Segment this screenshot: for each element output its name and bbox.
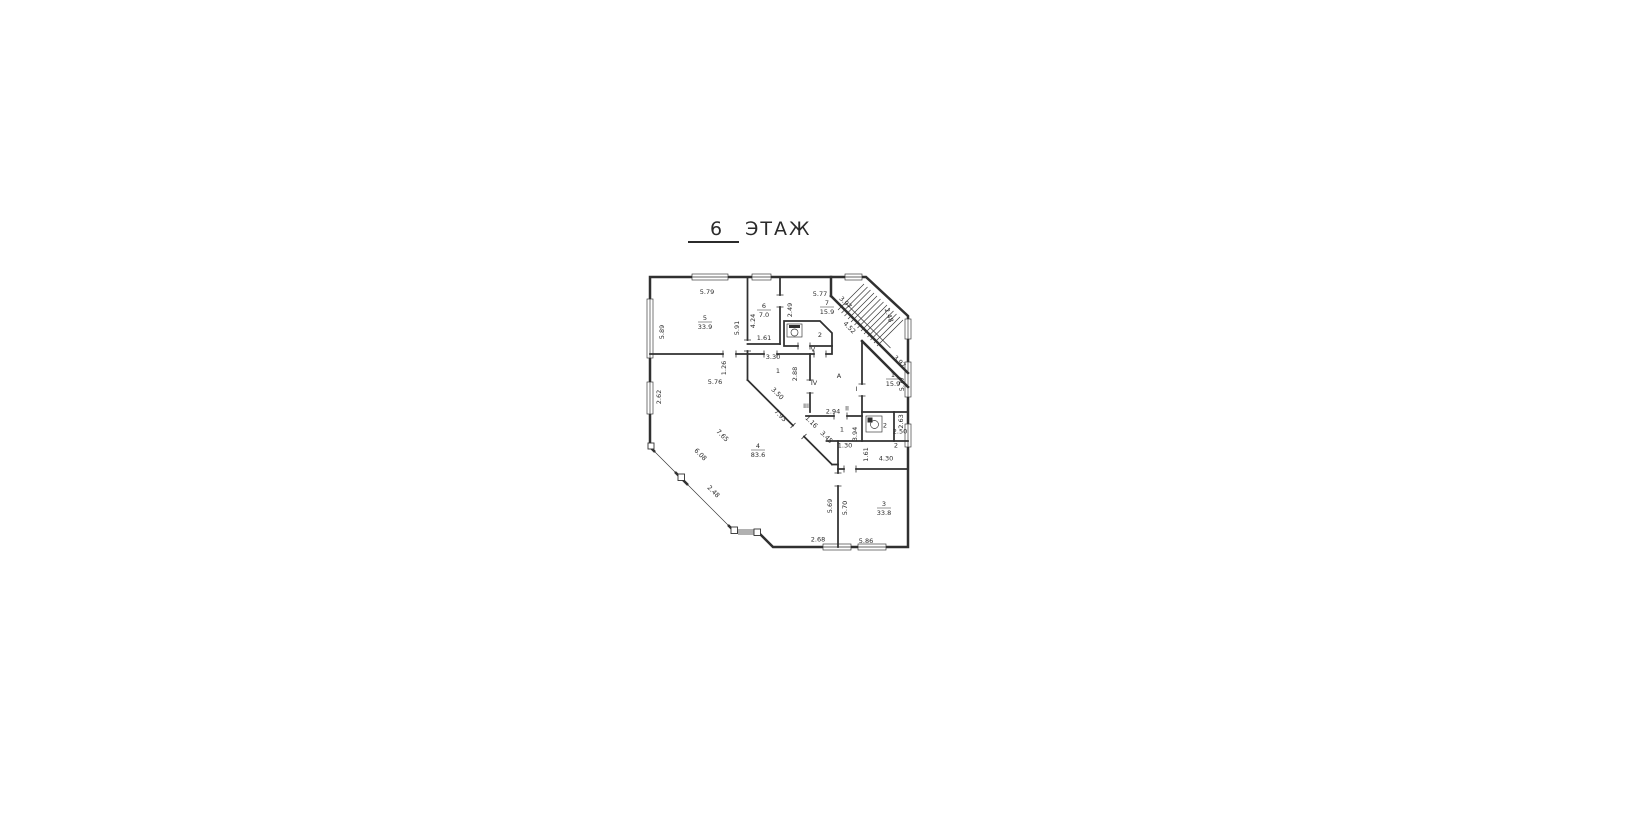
dimension-label: 5.79: [700, 288, 714, 296]
dimension-label: 6.08: [692, 447, 708, 463]
window: [845, 274, 862, 280]
dimension-label: 2.94: [826, 408, 840, 416]
dimension-label: 2: [883, 422, 887, 430]
floor-plan: 5.795.895.914.241.612.495.773.972.484.52…: [608, 213, 918, 558]
dimension-label: 2.48: [705, 484, 721, 500]
room-6-number: 6: [762, 302, 766, 310]
dimension-label: A: [837, 372, 842, 380]
room-6-area: 7.0: [759, 311, 769, 319]
dimension-label: 7.65: [714, 428, 730, 444]
dimension-label: 5.89: [658, 325, 666, 339]
dimension-label: 3.30: [766, 353, 780, 361]
dimension-label: 2.62: [655, 390, 663, 404]
window: [738, 530, 754, 534]
room-1-right-area: 15.9: [886, 380, 900, 388]
dimension-label: 1.30: [838, 442, 852, 450]
room-1-right-number: 1: [891, 371, 895, 379]
dimension-label: 7.93: [772, 408, 788, 424]
dimension-label: 1.26: [720, 361, 728, 375]
room-5-area: 33.9: [698, 323, 712, 331]
dimension-label: 1.61: [757, 334, 771, 342]
window: [647, 382, 653, 414]
window: [653, 450, 677, 474]
dimension-label: 1: [776, 367, 780, 375]
dimension-label: 5.70: [841, 501, 849, 515]
room-4-area: 83.6: [751, 451, 765, 459]
staircase: [831, 277, 908, 387]
room-7-area: 15.9: [820, 308, 834, 316]
dimension-label: 2: [818, 331, 822, 339]
floor-plan-page: 6ЭТАЖ: [0, 0, 1651, 828]
dimension-label: 3.50: [769, 386, 785, 402]
toilet-icon: [787, 324, 802, 337]
dimension-label: 2: [894, 442, 898, 450]
dimension-label: 5.86: [859, 537, 873, 545]
dimension-label: 3.94: [851, 427, 859, 441]
window: [823, 544, 851, 550]
dimension-label: 2.49: [786, 303, 794, 317]
room-5-number: 5: [703, 314, 707, 322]
window: [647, 299, 653, 358]
dimension-label: 5.76: [708, 378, 722, 386]
floor-plan-svg: 5.795.895.914.241.612.495.773.972.484.52…: [608, 213, 918, 558]
dimension-label: 5.77: [813, 290, 827, 298]
dimension-label: 4.24: [749, 314, 757, 328]
dimension-label: 2.63: [897, 414, 905, 428]
room-4-number: 4: [756, 442, 760, 450]
dimension-label: 2.48: [883, 307, 895, 323]
dimension-label: IV: [811, 379, 818, 387]
window: [752, 274, 771, 280]
dimension-label: 4.52: [841, 320, 857, 336]
dimension-label: 2.68: [811, 536, 825, 544]
dimension-label: 1.61: [862, 447, 870, 461]
dimension-label: 5.91: [733, 321, 741, 335]
dimension-label: 2.50: [893, 428, 907, 436]
dimension-label: 1: [840, 426, 844, 434]
room-7-number: 7: [825, 299, 829, 307]
room-3-number: 3: [882, 500, 886, 508]
window: [905, 319, 911, 339]
dimension-label: I: [856, 385, 858, 393]
dimension-label: III: [803, 402, 809, 410]
dimension-label: 5.69: [826, 499, 834, 513]
room-3-area: 33.8: [877, 509, 891, 517]
dimension-label: 2.88: [791, 367, 799, 381]
dimension-label: V: [811, 346, 816, 354]
dimension-label: 3.45: [818, 429, 834, 445]
dimension-label: II: [845, 405, 849, 413]
dimension-label: 4.30: [879, 455, 893, 463]
window: [692, 274, 728, 280]
toilet-icon: [866, 416, 882, 432]
